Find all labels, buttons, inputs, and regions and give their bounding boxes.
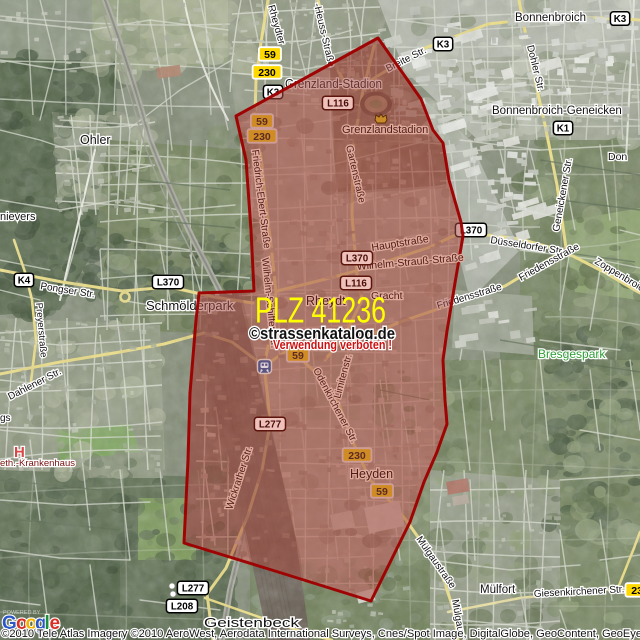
- svg-text:K1: K1: [557, 124, 570, 135]
- svg-text:Heyden: Heyden: [350, 467, 393, 481]
- svg-text:230: 230: [258, 67, 276, 79]
- svg-text:K4: K4: [18, 276, 31, 287]
- svg-text:Bonnenbroich: Bonnenbroich: [515, 12, 586, 24]
- svg-text:L208: L208: [171, 602, 194, 613]
- svg-text:Verwendung verboten !: Verwendung verboten !: [273, 338, 392, 352]
- svg-text:59: 59: [264, 49, 276, 61]
- svg-text:Bonnenbroich-Geneicken: Bonnenbroich-Geneicken: [492, 105, 622, 117]
- svg-text:230: 230: [631, 585, 640, 597]
- svg-text:L116: L116: [345, 279, 367, 290]
- svg-text:L116: L116: [327, 99, 349, 110]
- svg-text:Grenzlandstadion: Grenzlandstadion: [342, 124, 428, 136]
- svg-text:L277: L277: [182, 584, 205, 595]
- svg-text:gs: gs: [0, 413, 11, 424]
- svg-text:a ©2010 Tele Atlas Imagery ©2: a ©2010 Tele Atlas Imagery ©2010 AeroWes…: [0, 628, 640, 640]
- svg-text:Ohler: Ohler: [80, 133, 111, 147]
- svg-text:L277: L277: [259, 420, 282, 431]
- svg-text:nievers: nievers: [0, 211, 36, 223]
- svg-text:L370: L370: [346, 254, 369, 265]
- svg-text:K3: K3: [437, 40, 450, 51]
- svg-text:Mülfort: Mülfort: [480, 584, 516, 596]
- svg-text:Bresgespark: Bresgespark: [538, 347, 606, 361]
- svg-text:L370: L370: [157, 278, 180, 289]
- svg-text:eth.-Krankenhaus: eth.-Krankenhaus: [0, 458, 75, 469]
- svg-text:Don: Don: [608, 151, 627, 163]
- svg-text:K3: K3: [614, 14, 627, 25]
